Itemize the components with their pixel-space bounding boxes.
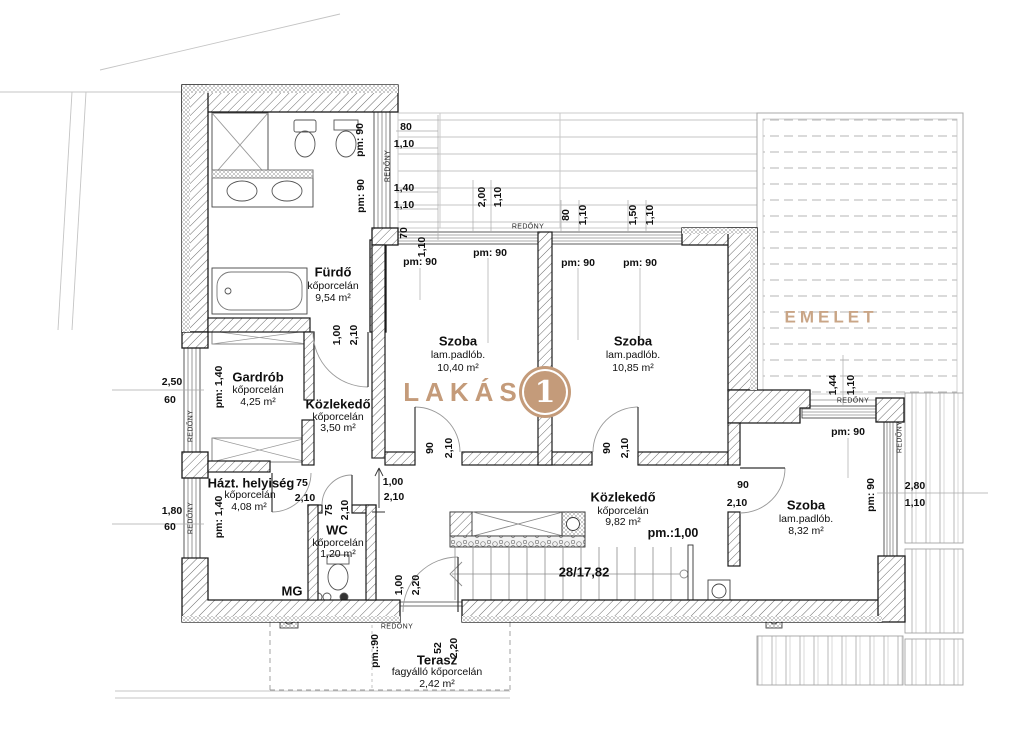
dim-furdo-door-w: 1,00: [332, 325, 343, 345]
pm90-furdo: pm: 90: [403, 257, 437, 268]
room-kozlekedo-small-finish: kőporcelán: [312, 412, 363, 423]
room-szoba3-name: Szoba: [787, 499, 825, 512]
room-kozlekedo-main-area: 9,82 m²: [605, 517, 641, 528]
dim-passage-h: 2,10: [384, 492, 404, 503]
room-kozlekedo-small-area: 3,50 m²: [320, 423, 356, 434]
dim-110-rot5: 1,10: [846, 375, 857, 395]
dim-110-rot2: 1,10: [578, 205, 589, 225]
shutter-label-left1: REDŐNY: [188, 410, 195, 442]
dim-szoba3-door-h: 2,10: [727, 498, 747, 509]
room-szoba1-area: 10,40 m²: [437, 363, 478, 374]
shutter-label-emelet: REDŐNY: [837, 398, 869, 405]
wc-fixtures: [314, 555, 349, 601]
pm140-gardrob-window: pm: 1,40: [214, 366, 225, 409]
room-kozlekedo-main-finish: kőporcelán: [597, 506, 648, 517]
dim-110-top2: 1,10: [394, 200, 414, 211]
dim-hazt-door-width: 75: [296, 478, 308, 489]
upper-floor-label: EMELET: [785, 309, 878, 326]
room-szoba2-area: 10,85 m²: [612, 363, 653, 374]
room-gardrob-area: 4,25 m²: [240, 397, 276, 408]
room-gardrob-name: Gardrób: [232, 371, 283, 384]
dim-140-top: 1,40: [394, 183, 414, 194]
room-hazt-finish: kőporcelán: [224, 490, 275, 501]
room-furdo-name: Fürdő: [315, 266, 352, 279]
pm90-terasz: pm.:90: [370, 634, 381, 668]
dim-terasz-step-h: 2,20: [449, 638, 460, 658]
parapet-100-label: pm.:1,00: [648, 527, 699, 540]
room-szoba2-finish: lam.padlób.: [606, 350, 660, 361]
room-szoba1-finish: lam.padlób.: [431, 350, 485, 361]
room-kozlekedo-small-name: Közlekedő: [305, 398, 370, 411]
dim-70-rot: 70: [399, 227, 410, 239]
room-szoba1-name: Szoba: [439, 335, 477, 348]
floor-plan: Fürdő kőporcelán 9,54 m² Gardrób kőporce…: [0, 0, 1020, 730]
door-arcs: [272, 332, 785, 612]
dim-hazt-door-height: 2,10: [295, 493, 315, 504]
deck-right: [905, 393, 963, 685]
room-hazt-name: Házt. helyiség: [208, 477, 295, 490]
dim-110-rot4: 1,10: [417, 237, 428, 257]
room-terasz-area: 2,42 m²: [419, 679, 455, 690]
dim-200-rot: 2,00: [477, 187, 488, 207]
room-furdo-area: 9,54 m²: [315, 293, 351, 304]
dim-110-right: 1,10: [905, 498, 925, 509]
pm90-szoba3-top: pm: 90: [831, 427, 865, 438]
dim-szoba2-door-h: 2,10: [620, 438, 631, 458]
dim-110-top1: 1,10: [394, 139, 414, 150]
dim-110-rot3: 1,10: [645, 205, 656, 225]
dim-80-rot: 80: [561, 209, 572, 221]
shutter-label-terasz: REDŐNY: [381, 624, 413, 631]
dim-280-right: 2,80: [905, 481, 925, 492]
room-szoba3-finish: lam.padlób.: [779, 514, 833, 525]
dim-szoba1-door-h: 2,10: [444, 438, 455, 458]
dim-110-rot1: 1,10: [493, 187, 504, 207]
room-gardrob-finish: kőporcelán: [232, 385, 283, 396]
room-szoba3-area: 8,32 m²: [788, 526, 824, 537]
shutter-label-top: REDŐNY: [512, 224, 544, 231]
room-szoba2-name: Szoba: [614, 335, 652, 348]
emelet-area: [757, 113, 963, 400]
stair-label: 28/17,82: [559, 566, 610, 579]
room-terasz-finish: fagyálló kőporcelán: [392, 667, 482, 678]
plan-drawing: [0, 0, 1020, 730]
dim-150-rot: 1,50: [628, 205, 639, 225]
dim-szoba3-door-w: 90: [737, 480, 749, 491]
dim-terasz-step-w: 52: [433, 642, 444, 654]
pm90-szoba2-left: pm: 90: [561, 258, 595, 269]
pm90-bath-window-top: pm: 90: [355, 123, 366, 157]
unit-title: LAKÁS: [403, 379, 523, 405]
pm90-szoba1-top: pm: 90: [473, 248, 507, 259]
dim-80-top: 80: [400, 122, 412, 133]
dim-terasz-door-h: 2,20: [411, 575, 422, 595]
pm90-szoba3-right: pm: 90: [866, 478, 877, 512]
dim-furdo-door-h: 2,10: [349, 325, 360, 345]
room-wc-finish: kőporcelán: [312, 538, 363, 549]
washing-machine-label: MG: [282, 585, 303, 598]
deck-bottom: [757, 636, 903, 685]
room-wc-name: WC: [326, 524, 348, 537]
dim-60-left1: 60: [164, 395, 176, 406]
dim-60-left2: 60: [164, 522, 176, 533]
pm90-szoba2-right: pm: 90: [623, 258, 657, 269]
dim-wc-door-h: 2,10: [340, 500, 351, 520]
room-wc-area: 1,20 m²: [320, 549, 356, 560]
dim-szoba2-door-w: 90: [602, 442, 613, 454]
shutter-label-szoba3: REDŐNY: [897, 421, 904, 453]
dim-szoba1-door-w: 90: [425, 442, 436, 454]
shutter-label-bath: REDŐNY: [385, 150, 392, 182]
pm90-bath-window-bottom: pm: 90: [356, 179, 367, 213]
unit-number-badge: 1: [524, 371, 566, 413]
dim-terasz-door-w: 1,00: [394, 575, 405, 595]
dim-passage-w: 1,00: [383, 477, 403, 488]
dim-250-left: 2,50: [162, 377, 182, 388]
room-furdo-finish: kőporcelán: [307, 281, 358, 292]
dim-wc-door-w: 75: [324, 504, 335, 516]
room-hazt-area: 4,08 m²: [231, 502, 267, 513]
dim-180-left: 1,80: [162, 506, 182, 517]
dim-144-rot: 1,44: [828, 375, 839, 395]
pm140-hazt-window: pm: 1,40: [214, 496, 225, 539]
shutter-label-left2: REDŐNY: [188, 502, 195, 534]
room-kozlekedo-main-name: Közlekedő: [590, 491, 655, 504]
